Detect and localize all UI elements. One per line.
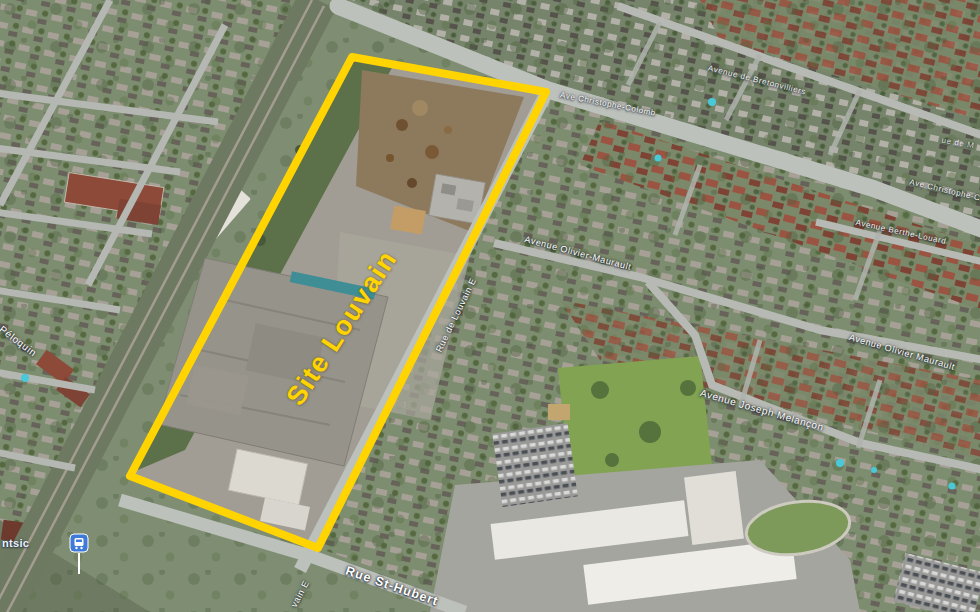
map-canvas[interactable]: Avenue de Bretonvilliers Ave Christophe-… xyxy=(0,0,980,612)
aerial-imagery xyxy=(0,0,980,612)
